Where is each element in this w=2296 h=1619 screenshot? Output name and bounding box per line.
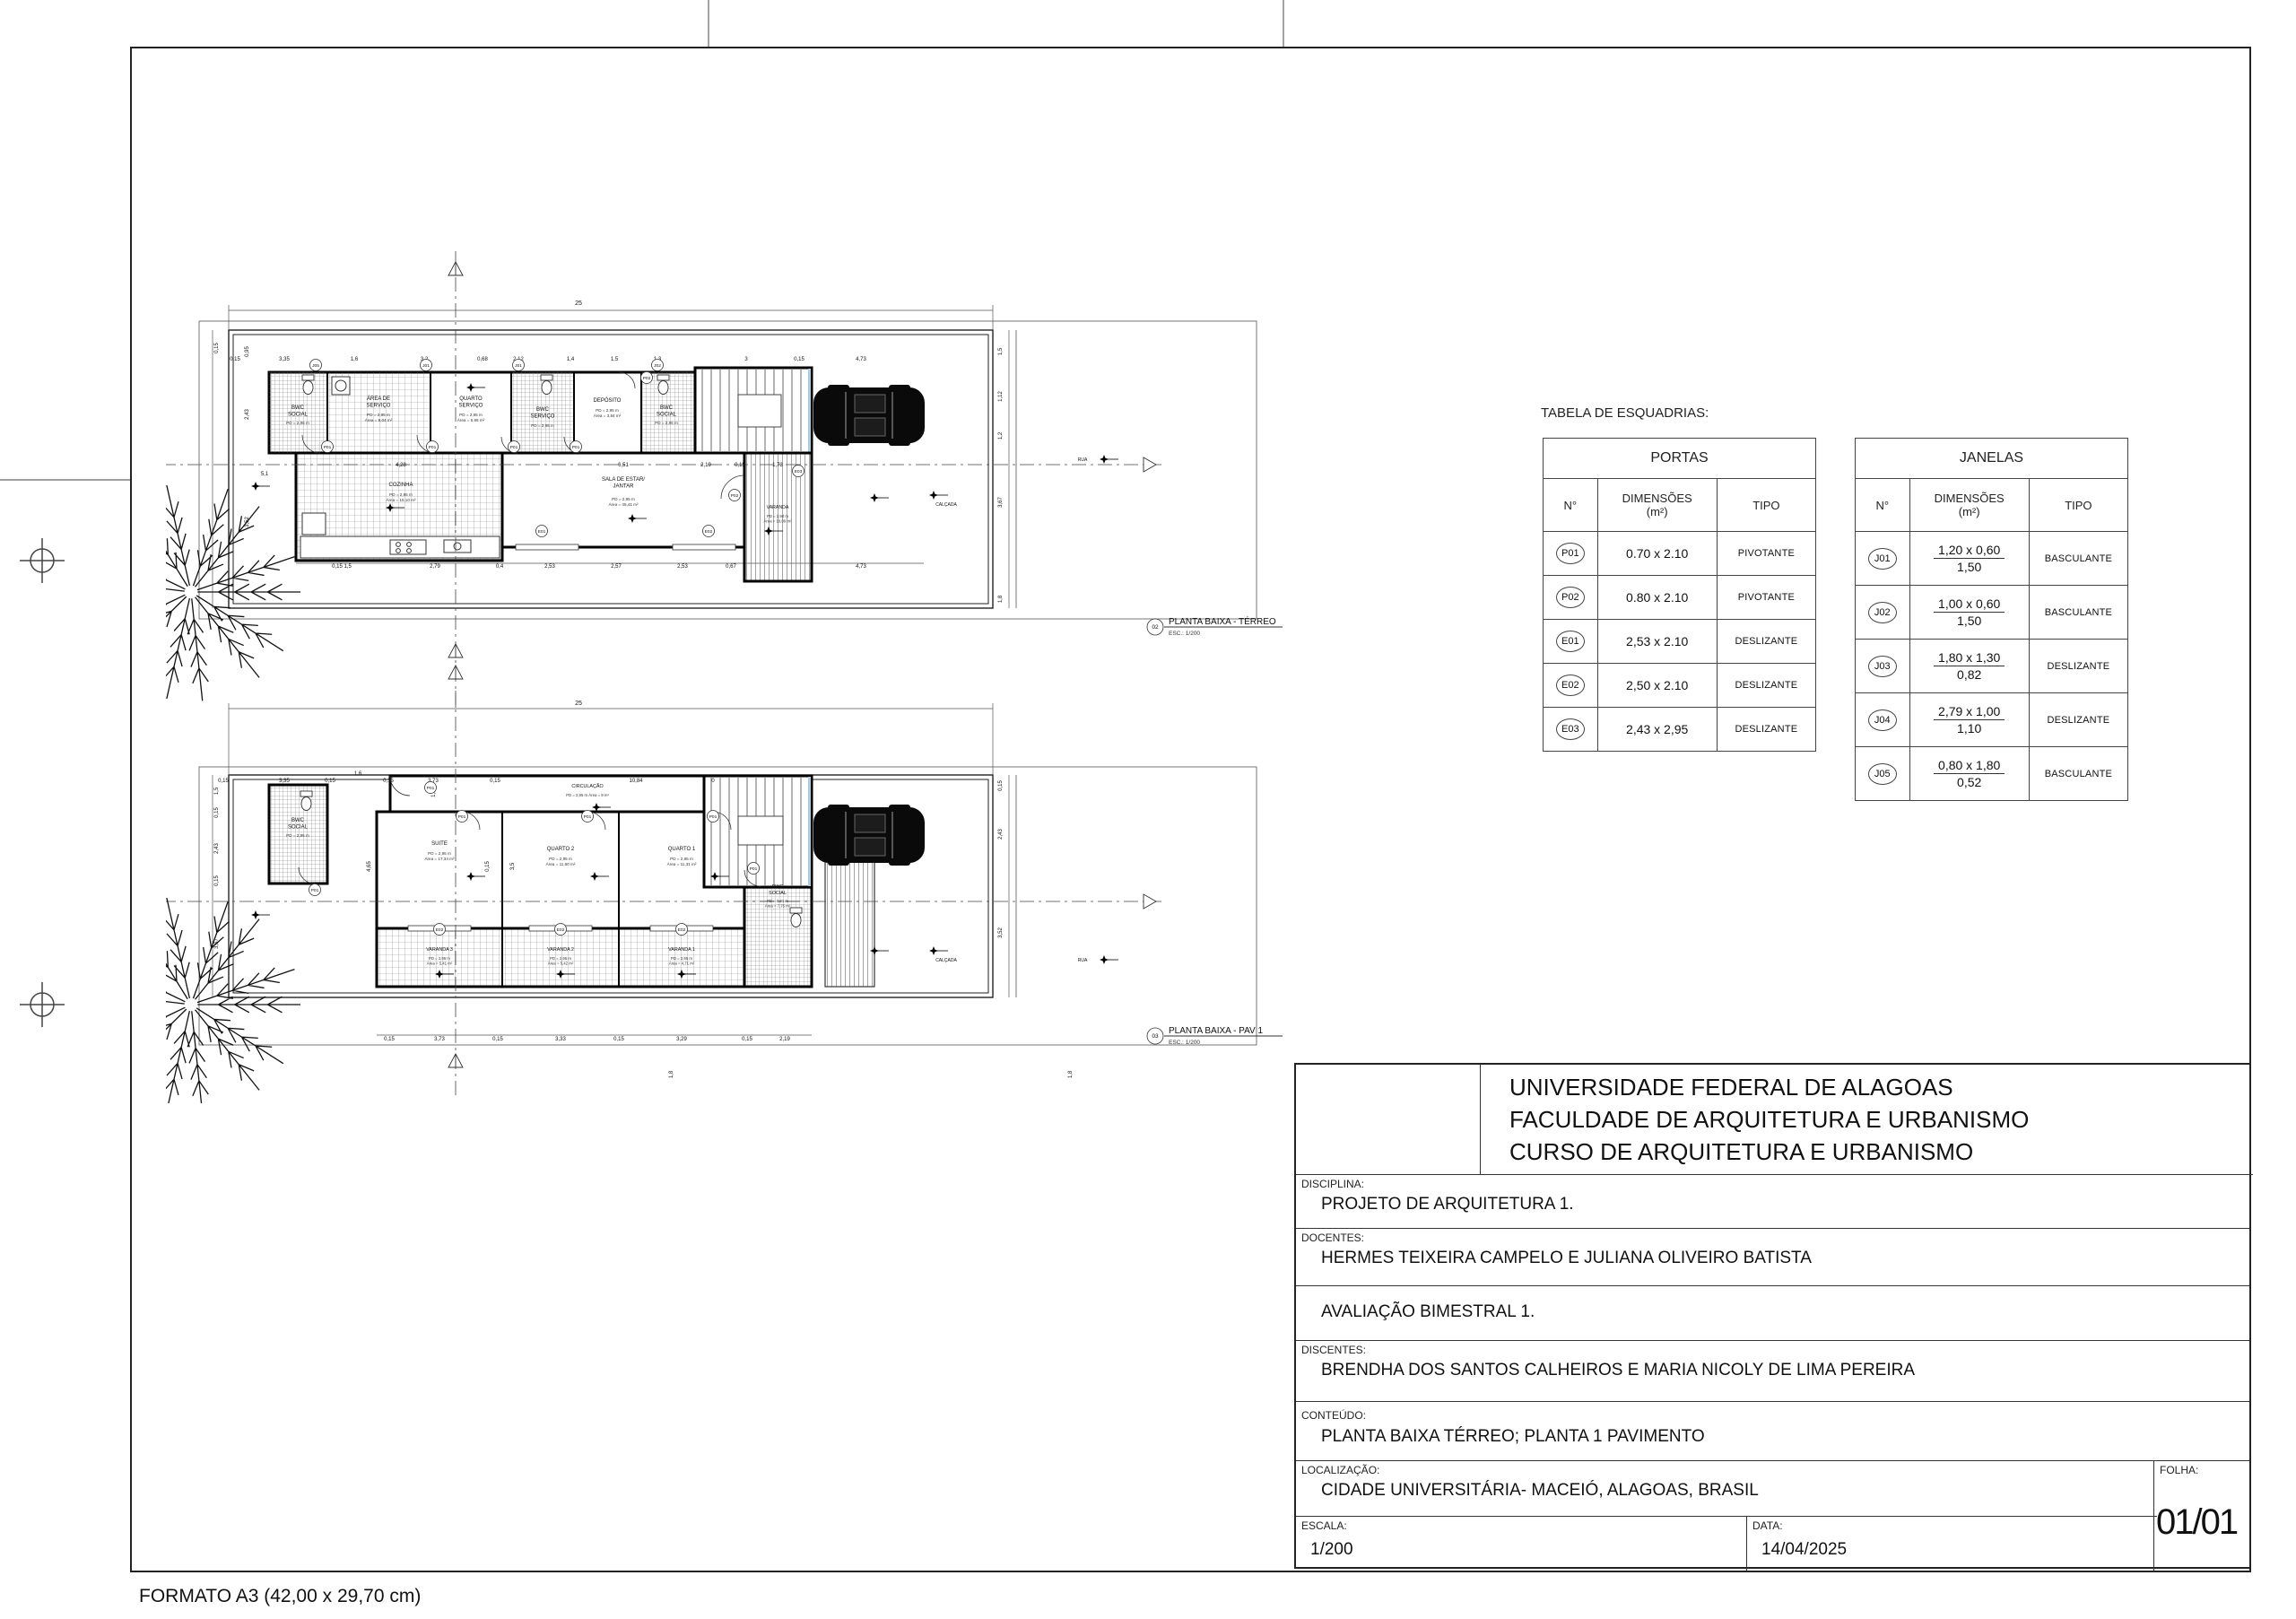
plan-text: PD = 2,95 mÁrea = 45,41 m² — [608, 497, 639, 507]
bedrooms-block — [377, 812, 744, 928]
plan-text: 0,15 — [742, 1037, 752, 1042]
table-cell: BASCULANTE — [2029, 747, 2127, 800]
plan-text: 0,67 — [726, 564, 736, 570]
localizacao-row: LOCALIZAÇÃO: CIDADE UNIVERSITÁRIA- MACEI… — [1296, 1461, 2157, 1517]
institution-header: UNIVERSIDADE FEDERAL DE ALAGOAS FACULDAD… — [1480, 1065, 2253, 1175]
plan-text: 0,68 — [477, 357, 488, 362]
crosshair-mark-lower — [20, 982, 65, 1027]
table-cell: DESLIZANTE — [2029, 640, 2127, 692]
plan-text: RUA — [1078, 958, 1088, 963]
table-cell: DESLIZANTE — [2029, 693, 2127, 746]
plan-text: 0,15 — [735, 463, 745, 468]
tag-circle: J04 — [1868, 709, 1897, 731]
plan-tag-label: P01 — [750, 866, 758, 872]
janelas-table-body: J011,20 x 0,601,50BASCULANTEJ021,00 x 0,… — [1856, 531, 2127, 800]
plan-text: 1,8 — [998, 595, 1004, 603]
table-cell: BASCULANTE — [2029, 586, 2127, 639]
portas-table-header: PORTAS — [1544, 439, 1815, 478]
plan-text: QUARTOSERVIÇO — [459, 396, 483, 409]
portas-table-body: P010.70 x 2.10PIVOTANTEP020.80 x 2.10PIV… — [1544, 531, 1815, 751]
col-header-tipo: TIPO — [1717, 479, 1815, 531]
plan-tag-label: P01 — [510, 445, 518, 450]
plan-tag-label: P01 — [584, 814, 592, 820]
plan-text: PD = 2,95 m — [531, 423, 554, 428]
localizacao-value: CIDADE UNIVERSITÁRIA- MACEIÓ, ALAGOAS, B… — [1321, 1481, 1759, 1501]
plan-text: 3,52 — [998, 927, 1004, 938]
docentes-row: DOCENTES: HERMES TEIXEIRA CAMPELO E JULI… — [1296, 1229, 2249, 1286]
table-cell: J04 — [1856, 693, 1909, 746]
plan-text: 3,52 — [245, 517, 250, 527]
discentes-label: DISCENTES: — [1301, 1344, 1366, 1356]
level-marker — [1100, 455, 1118, 464]
discentes-value: BRENDHA DOS SANTOS CALHEIROS E MARIA NIC… — [1321, 1361, 1915, 1380]
plan-text: VARANDA 1 — [668, 947, 695, 953]
plan-text: 1,8 — [1068, 1070, 1074, 1078]
dimension-line-top — [229, 703, 993, 775]
plan-text: 0,95 — [245, 346, 250, 357]
plan-text: 2,53 — [544, 564, 555, 570]
plan-text: 3,67 — [998, 497, 1004, 508]
plan-text: 0,15 — [998, 780, 1004, 791]
table-cell: 2,50 x 2.10 — [1597, 664, 1717, 707]
plan-text: 0,15 — [490, 779, 500, 784]
table-cell: 0.70 x 2.10 — [1597, 532, 1717, 575]
table-cell: DESLIZANTE — [1717, 708, 1815, 751]
janelas-table: JANELAS N° DIMENSÕES(m²) TIPO J011,20 x … — [1855, 438, 2128, 801]
plan-tag-label: P01 — [324, 445, 332, 450]
tag-circle: P01 — [1556, 543, 1585, 564]
esquadrias-table-title: TABELA DE ESQUADRIAS: — [1541, 405, 1709, 421]
plan-tag-label: P01 — [311, 888, 319, 893]
plan-tag-label: E03 — [795, 469, 803, 474]
table-cell: J01 — [1856, 532, 1909, 585]
plan-text: 0,15 — [492, 1037, 503, 1042]
plan-text: PD = 2,95 mÁrea = 17,34 m² — [424, 851, 455, 861]
plan-text: PD = 3,01 mÁrea = 7,75 m² — [765, 899, 791, 908]
escala-value: 1/200 — [1310, 1540, 1353, 1560]
plan-text: 1,8 — [669, 1070, 674, 1078]
table-cell: 0.80 x 2.10 — [1597, 576, 1717, 619]
car — [813, 385, 925, 446]
plan-text: 25 — [575, 300, 582, 307]
plan-text: RUA — [1078, 457, 1088, 463]
plan-text: 4,65 — [367, 861, 372, 872]
institution-line: CURSO DE ARQUITETURA E URBANISMO — [1509, 1136, 2253, 1168]
table-row: J011,20 x 0,601,50BASCULANTE — [1856, 531, 2127, 585]
tag-circle: E02 — [1556, 675, 1585, 696]
plan-text: VARANDA — [767, 505, 789, 510]
plan-text: 3,5 — [510, 862, 516, 870]
plan-text: 3,35 — [279, 779, 290, 784]
tag-circle: J02 — [1868, 602, 1897, 623]
disciplina-row: DISCIPLINA: PROJETO DE ARQUITETURA 1. — [1296, 1175, 2249, 1229]
plan-text: PD = 2,95 mÁrea = 4,71 m² — [669, 956, 695, 965]
logo-cell — [1296, 1065, 1480, 1175]
col-header-dimensoes: DIMENSÕES(m²) — [1597, 479, 1717, 531]
plan-text: 0,15 — [214, 343, 220, 353]
plan-text: SUITE — [431, 841, 448, 847]
table-row: J031,80 x 1,300,82DESLIZANTE — [1856, 639, 2127, 692]
plan-text: 1,5 — [214, 787, 220, 795]
level-marker — [1100, 955, 1118, 964]
plan-text: 2,57 — [611, 564, 622, 570]
table-cell: DESLIZANTE — [1717, 620, 1815, 663]
col-header-dimensoes: DIMENSÕES(m²) — [1909, 479, 2029, 531]
plan-text: 2,53 — [677, 564, 688, 570]
data-row: DATA: 14/04/2025 — [1746, 1517, 2157, 1571]
plan-text: 2,43 — [214, 843, 220, 854]
institution-line: UNIVERSIDADE FEDERAL DE ALAGOAS — [1509, 1071, 2253, 1103]
plan-text: CIRCULAÇÃO — [571, 783, 603, 789]
conteudo-label: CONTEÚDO: — [1301, 1409, 1366, 1422]
plan-text: 0,15 1,5 — [332, 564, 352, 570]
plan-tag-label: P02 — [643, 376, 651, 381]
plan-text: DEPÓSITO — [594, 397, 622, 404]
plan-text: VARANDA 3 — [426, 947, 453, 953]
plan-text: 5,1 — [261, 472, 269, 477]
localizacao-label: LOCALIZAÇÃO: — [1301, 1464, 1379, 1476]
disciplina-value: PROJETO DE ARQUITETURA 1. — [1321, 1195, 1574, 1214]
data-label: DATA: — [1752, 1519, 1783, 1532]
plan-text: 1,5 — [998, 347, 1004, 355]
plan-tag-label: J05 — [312, 363, 319, 369]
table-cell: 1,20 x 0,601,50 — [1909, 532, 2029, 585]
title-block: UNIVERSIDADE FEDERAL DE ALAGOAS FACULDAD… — [1294, 1063, 2251, 1569]
plan-tag-label: 02 — [1152, 624, 1159, 631]
plan-text: 2,43 — [245, 409, 250, 420]
tag-circle: P02 — [1556, 587, 1585, 608]
plan-text: COZINHA — [389, 483, 413, 488]
side-deck — [825, 857, 874, 987]
plan-tag-label: 03 — [1152, 1033, 1159, 1040]
plan-tag-label: P01 — [458, 814, 466, 820]
plan-text: 0,15 — [794, 357, 804, 362]
table-cell: P01 — [1544, 532, 1597, 575]
table-row: E022,50 x 2.10DESLIZANTE — [1544, 663, 1815, 707]
staircase — [695, 368, 812, 453]
crosshair-mark-upper — [20, 538, 65, 583]
tag-circle: J01 — [1868, 548, 1897, 570]
plan-text: 3,67 — [214, 938, 220, 949]
plan-text: 6,51 — [618, 463, 629, 468]
table-row: E012,53 x 2.10DESLIZANTE — [1544, 619, 1815, 663]
conteudo-row: CONTEÚDO: PLANTA BAIXA TÉRREO; PLANTA 1 … — [1296, 1402, 2249, 1461]
table-row: J021,00 x 0,601,50BASCULANTE — [1856, 585, 2127, 639]
table-cell: E02 — [1544, 664, 1597, 707]
plan-text: 0,15 — [230, 357, 240, 362]
plan-text: 3,33 — [555, 1037, 566, 1042]
plan-text: PLANTA BAIXA - PAV 1 — [1169, 1026, 1263, 1036]
plan-text: 2,79 — [430, 564, 440, 570]
table-cell: PIVOTANTE — [1717, 532, 1815, 575]
table-cell: 0,80 x 1,800,52 — [1909, 747, 2029, 800]
plan-text: 10,84 — [629, 779, 643, 784]
plan-text: 3,29 — [676, 1037, 687, 1042]
table-cell: BASCULANTE — [2029, 532, 2127, 585]
plan-text: PD = 2,95 m — [286, 833, 309, 838]
table-row: P020.80 x 2.10PIVOTANTE — [1544, 575, 1815, 619]
table-cell: J03 — [1856, 640, 1909, 692]
plan-text: PLANTA BAIXA - TÉRREO — [1169, 615, 1276, 627]
table-cell: PIVOTANTE — [1717, 576, 1815, 619]
car — [813, 805, 925, 866]
plan-text: 0,15 — [384, 1037, 395, 1042]
plan-tag-label: P01 — [427, 786, 435, 791]
plan-text: PD = 2,95 m Área = 9 m² — [566, 793, 609, 797]
plan-text: 0,15 — [325, 779, 335, 784]
plan-text: 0,15 — [383, 779, 394, 784]
floor-plan-pav1: 250,153,350,151,60,153,730,1510,8400,153… — [166, 691, 1287, 1103]
plan-text: 1,73 — [772, 463, 783, 468]
plan-text: PD = 2,95 mÁrea = 15,10 m² — [386, 492, 416, 502]
plan-tag-label: J02 — [654, 363, 661, 369]
plan-text: 0,15 — [485, 861, 491, 872]
janelas-column-headers: N° DIMENSÕES(m²) TIPO — [1856, 478, 2127, 531]
tag-circle: E01 — [1556, 631, 1585, 652]
institution-line: FACULDADE DE ARQUITETURA E URBANISMO — [1509, 1103, 2253, 1136]
plan-text: 2,19 — [700, 463, 711, 468]
plan-text: 3,73 — [434, 1037, 445, 1042]
plan-text: QUARTO 2 — [547, 847, 575, 852]
table-cell: J05 — [1856, 747, 1909, 800]
table-cell: E03 — [1544, 708, 1597, 751]
plan-text: 4,73 — [856, 564, 866, 570]
plan-text: 2,19 — [779, 1037, 790, 1042]
table-cell: E01 — [1544, 620, 1597, 663]
plan-text: 25 — [575, 701, 582, 707]
table-cell: 2,53 x 2.10 — [1597, 620, 1717, 663]
plan-text: 0,15 — [613, 1037, 624, 1042]
table-cell: 2,43 x 2,95 — [1597, 708, 1717, 751]
avaliacao-value: AVALIAÇÃO BIMESTRAL 1. — [1321, 1302, 1535, 1322]
plan-tag-label: P01 — [709, 814, 717, 820]
portas-table: PORTAS N° DIMENSÕES(m²) TIPO P010.70 x 2… — [1543, 438, 1816, 752]
plan-tag-label: E02 — [557, 927, 565, 933]
floor-plan-terreo: 250,153,351,63,20,682,121,41,51,330,154,… — [166, 251, 1287, 718]
plan-text: QUARTO 1 — [668, 847, 696, 852]
plan-tag-label: P02 — [731, 493, 739, 499]
plan-text: 2,43 — [998, 829, 1004, 840]
tag-circle: E03 — [1556, 718, 1585, 740]
table-cell: P02 — [1544, 576, 1597, 619]
table-row: J042,79 x 1,001,10DESLIZANTE — [1856, 692, 2127, 746]
plan-text: 3,35 — [279, 357, 290, 362]
table-cell: 1,00 x 0,601,50 — [1909, 586, 2029, 639]
plan-text: 1,12 — [998, 391, 1004, 402]
folha-label: FOLHA: — [2160, 1464, 2198, 1476]
col-header-tipo: TIPO — [2029, 479, 2127, 531]
table-cell: DESLIZANTE — [1717, 664, 1815, 707]
plan-text: 1,5 — [611, 357, 619, 362]
plan-text: VARANDA 2 — [547, 947, 574, 953]
plan-tag-label: E02 — [436, 927, 444, 933]
plan-text: PD = 2,90 mÁrea = 10,09 m² — [764, 514, 792, 523]
janelas-table-header: JANELAS — [1856, 439, 2127, 478]
plan-text: PD = 2,95 mÁrea = 3,84 m² — [594, 408, 622, 418]
laundry-machine — [332, 377, 350, 395]
avaliacao-row: AVALIAÇÃO BIMESTRAL 1. — [1296, 1286, 2249, 1341]
plan-text: CALÇADA — [935, 502, 957, 508]
discentes-row: DISCENTES: BRENDHA DOS SANTOS CALHEIROS … — [1296, 1341, 2249, 1402]
plan-tag-label: E02 — [678, 927, 686, 933]
plan-tag-label: P01 — [572, 445, 580, 450]
tag-circle: J03 — [1868, 656, 1897, 677]
plan-text: 4,73 — [856, 357, 866, 362]
plan-text: 1,6 — [354, 771, 362, 777]
plan-tag-label: J01 — [422, 363, 430, 369]
docentes-label: DOCENTES: — [1301, 1232, 1364, 1244]
plan-text: ESC.: 1/200 — [1169, 631, 1200, 637]
table-row: E032,43 x 2,95DESLIZANTE — [1544, 707, 1815, 751]
plan-text: PD = 2,95 mÁrea = 5,41 m² — [427, 956, 453, 965]
docentes-value: HERMES TEIXEIRA CAMPELO E JULIANA OLIVEI… — [1321, 1249, 1812, 1268]
plan-text: 1,4 — [567, 357, 575, 362]
plan-text: CALÇADA — [935, 958, 957, 963]
tag-circle: J05 — [1868, 763, 1897, 785]
plan-text: PD = 2,95 mÁrea = 5,95 m² — [457, 413, 485, 422]
table-cell: J02 — [1856, 586, 1909, 639]
col-header-numero: N° — [1856, 479, 1909, 531]
plan-tag-label: J01 — [515, 363, 522, 369]
plan-text: ESC.: 1/200 — [1169, 1040, 1200, 1046]
plan-text: 0,4 — [496, 564, 504, 570]
plan-text: 0,15 — [214, 807, 220, 818]
table-row: J050,80 x 1,800,52BASCULANTE — [1856, 746, 2127, 800]
plan-text: 4,28 — [396, 463, 406, 468]
format-note: FORMATO A3 (42,00 x 29,70 cm) — [139, 1586, 421, 1607]
sheet-canvas: { "sheet": { "format_note": "FORMATO A3 … — [0, 0, 2296, 1619]
plan-text: PD = 2,95 mÁrea = 5,42 m² — [548, 956, 574, 965]
plan-text: 0,15 — [214, 875, 220, 886]
plan-tag-label: P01 — [429, 445, 437, 450]
conteudo-value: PLANTA BAIXA TÉRREO; PLANTA 1 PAVIMENTO — [1321, 1427, 1705, 1447]
table-row: P010.70 x 2.10PIVOTANTE — [1544, 531, 1815, 575]
plan-text: PD = 2,95 m — [286, 421, 309, 425]
col-header-numero: N° — [1544, 479, 1597, 531]
folha-cell: FOLHA: 01/01 — [2153, 1461, 2249, 1571]
table-cell: 1,80 x 1,300,82 — [1909, 640, 2029, 692]
plan-tag-label: E01 — [538, 529, 546, 535]
plan-text: PD = 2,95 mÁrea = 9,04 m² — [365, 413, 393, 422]
dimension-line-top — [229, 305, 993, 330]
plan-text: PD = 2,95 m — [655, 421, 678, 425]
plan-text: 0,15 — [218, 779, 229, 784]
disciplina-label: DISCIPLINA: — [1301, 1178, 1364, 1190]
plan-text: 1,2 — [998, 431, 1004, 440]
plan-text: PD = 2,95 mÁrea = 11,31 m² — [667, 857, 697, 866]
plan-tag-label: E02 — [705, 529, 713, 535]
escala-row: ESCALA: 1/200 — [1296, 1517, 1746, 1571]
plan-text: PD = 2,95 mÁrea = 11,60 m² — [546, 857, 576, 866]
folha-value: 01/01 — [2156, 1502, 2237, 1543]
table-cell: 2,79 x 1,001,10 — [1909, 693, 2029, 746]
plan-text: 1,6 — [351, 357, 359, 362]
data-value: 14/04/2025 — [1761, 1540, 1847, 1560]
escala-label: ESCALA: — [1301, 1519, 1347, 1532]
portas-column-headers: N° DIMENSÕES(m²) TIPO — [1544, 478, 1815, 531]
